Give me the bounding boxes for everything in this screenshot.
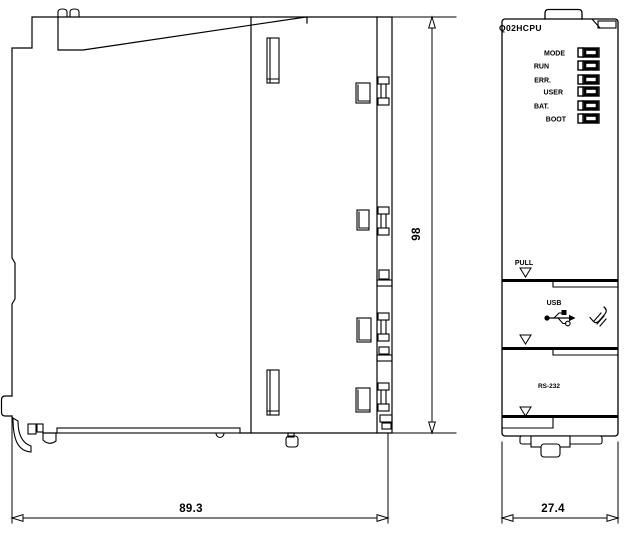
- led-indicator: [578, 48, 599, 57]
- dimension-height-label: 98: [411, 227, 423, 241]
- side-outline: [12, 17, 392, 433]
- pull-label: PULL: [515, 260, 534, 267]
- usb-label: USB: [547, 300, 562, 307]
- led-label-user: USER: [544, 90, 563, 97]
- down-triangle-marker-icon: [520, 268, 531, 277]
- led-indicator: [578, 87, 599, 96]
- mounting-hook-icons: [58, 9, 79, 17]
- led-label-err: ERR.: [534, 78, 551, 85]
- led-indicator: [578, 75, 599, 84]
- side-left-boss: [2, 396, 13, 416]
- front-corner-clip: [592, 19, 616, 28]
- press-hand-icon: [590, 307, 606, 326]
- vent-slots: [267, 38, 279, 415]
- din-rail-latch-icon: [13, 418, 56, 452]
- led-label-bat: BAT.: [534, 104, 549, 111]
- led-panel: MODE RUN ERR. USER BAT. BOOT: [534, 48, 599, 124]
- dimension-height: 98: [392, 17, 456, 433]
- drawing-canvas: Q02HCPU MODE RUN ERR. USER BAT. BOOT PUL…: [0, 0, 624, 533]
- panel-seam: [502, 347, 618, 355]
- down-triangle-marker-icon: [520, 335, 531, 344]
- panel-seam: [502, 279, 618, 287]
- model-label: Q02HCPU: [499, 23, 542, 33]
- led-indicator: [578, 61, 599, 70]
- usb-icon: [544, 310, 575, 326]
- technical-drawing: Q02HCPU MODE RUN ERR. USER BAT. BOOT PUL…: [0, 0, 624, 533]
- led-indicator: [578, 101, 599, 110]
- front-top-tab: [545, 10, 582, 20]
- bottom-rail-bar: [57, 428, 240, 433]
- bottom-pegs: [216, 433, 298, 447]
- bottom-connector: [520, 436, 602, 457]
- led-label-boot: BOOT: [546, 117, 567, 124]
- side-view: [2, 9, 393, 452]
- led-label-mode: MODE: [544, 51, 565, 58]
- panel-seam: [502, 415, 618, 428]
- dimension-depth-label: 89.3: [179, 503, 203, 515]
- dimension-depth: 89.3: [12, 418, 388, 523]
- front-view: Q02HCPU MODE RUN ERR. USER BAT. BOOT PUL…: [499, 10, 618, 458]
- front-face-joints: [377, 270, 392, 429]
- front-body: [502, 19, 618, 436]
- dimension-front-width-label: 27.4: [541, 503, 565, 515]
- led-indicators: [578, 48, 599, 123]
- down-triangle-marker-icon: [520, 407, 531, 416]
- side-detail-boxes: [356, 83, 371, 412]
- led-indicator: [578, 114, 599, 123]
- led-label-run: RUN: [534, 64, 549, 71]
- serial-port-label: RS-232: [538, 383, 560, 390]
